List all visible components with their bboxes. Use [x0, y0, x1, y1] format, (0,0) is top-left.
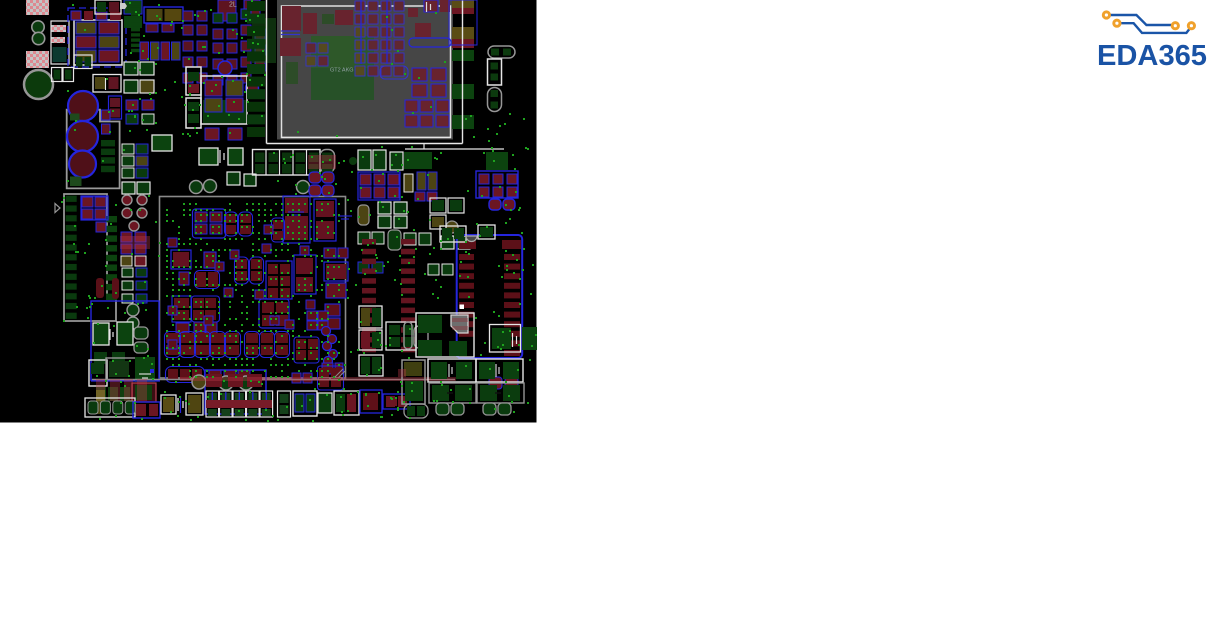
svg-text:EDA365: EDA365 — [1097, 40, 1207, 72]
svg-text:2L: 2L — [229, 2, 237, 9]
svg-text:GT2 AKG: GT2 AKG — [330, 68, 354, 74]
